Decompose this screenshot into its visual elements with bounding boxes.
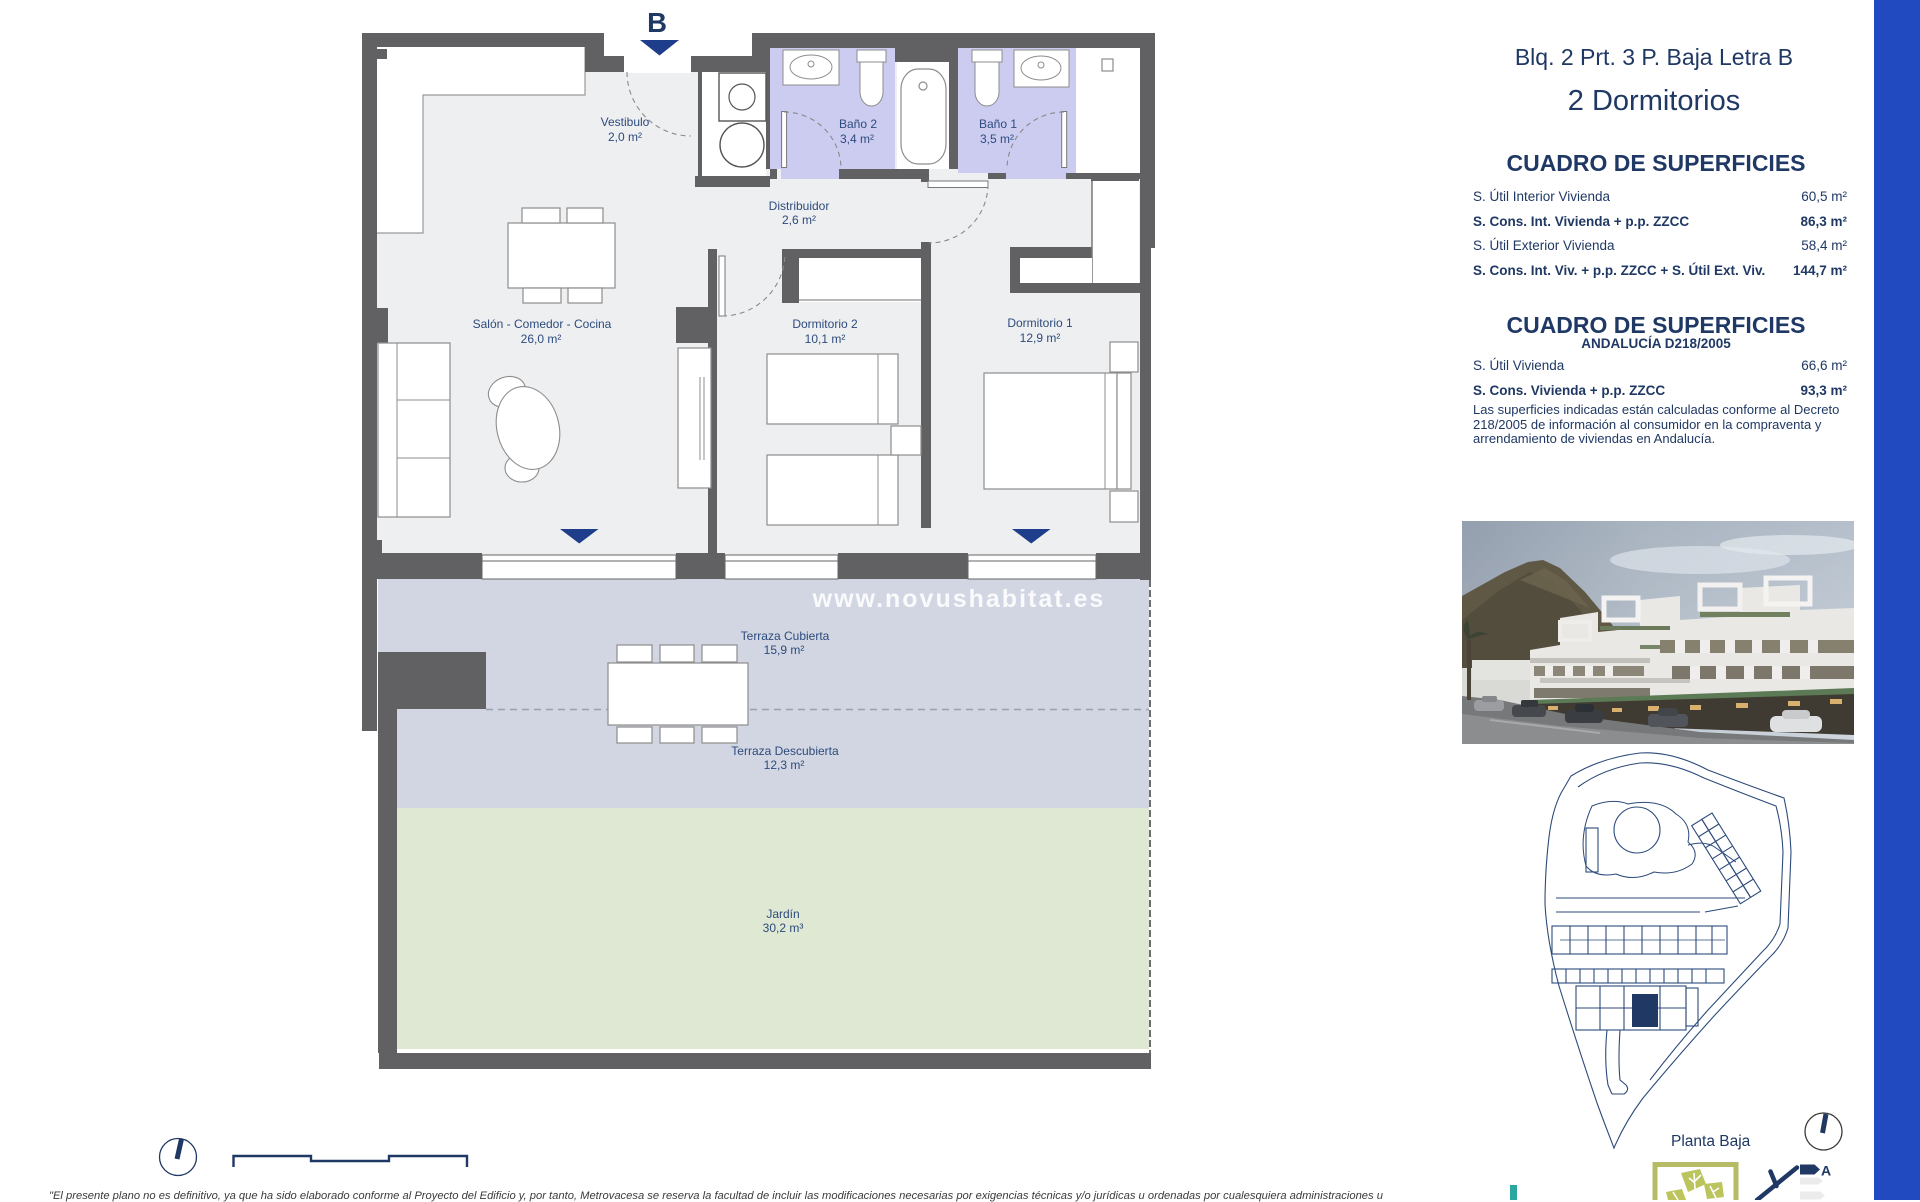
svg-text:26,0 m²: 26,0 m² xyxy=(521,332,562,346)
svg-text:Dormitorio 1: Dormitorio 1 xyxy=(1007,316,1073,330)
svg-text:Distribuidor: Distribuidor xyxy=(769,199,830,213)
svg-text:12,3 m²: 12,3 m² xyxy=(764,758,805,772)
svg-text:Terraza Descubierta: Terraza Descubierta xyxy=(731,744,839,758)
svg-text:3,5 m²: 3,5 m² xyxy=(980,132,1014,146)
svg-text:2,0 m²: 2,0 m² xyxy=(608,130,642,144)
svg-text:www.novushabitat.es: www.novushabitat.es xyxy=(812,585,1106,613)
svg-text:15,9 m²: 15,9 m² xyxy=(764,643,805,657)
svg-text:Dormitorio 2: Dormitorio 2 xyxy=(792,317,858,331)
svg-text:Baño 1: Baño 1 xyxy=(979,117,1017,131)
svg-text:2,6 m²: 2,6 m² xyxy=(782,213,816,227)
svg-text:12,9 m²: 12,9 m² xyxy=(1020,331,1061,345)
svg-text:Baño 2: Baño 2 xyxy=(839,117,877,131)
svg-text:Salón - Comedor - Cocina: Salón - Comedor - Cocina xyxy=(473,317,612,331)
svg-text:A: A xyxy=(1821,1163,1831,1179)
svg-text:30,2 m³: 30,2 m³ xyxy=(763,921,804,935)
svg-text:3,4 m²: 3,4 m² xyxy=(840,132,874,146)
svg-text:Terraza Cubierta: Terraza Cubierta xyxy=(741,629,830,643)
svg-text:Vestibulo: Vestibulo xyxy=(601,115,650,129)
svg-text:B: B xyxy=(647,7,667,38)
svg-text:Jardín: Jardín xyxy=(766,907,799,921)
svg-text:10,1 m²: 10,1 m² xyxy=(805,332,846,346)
